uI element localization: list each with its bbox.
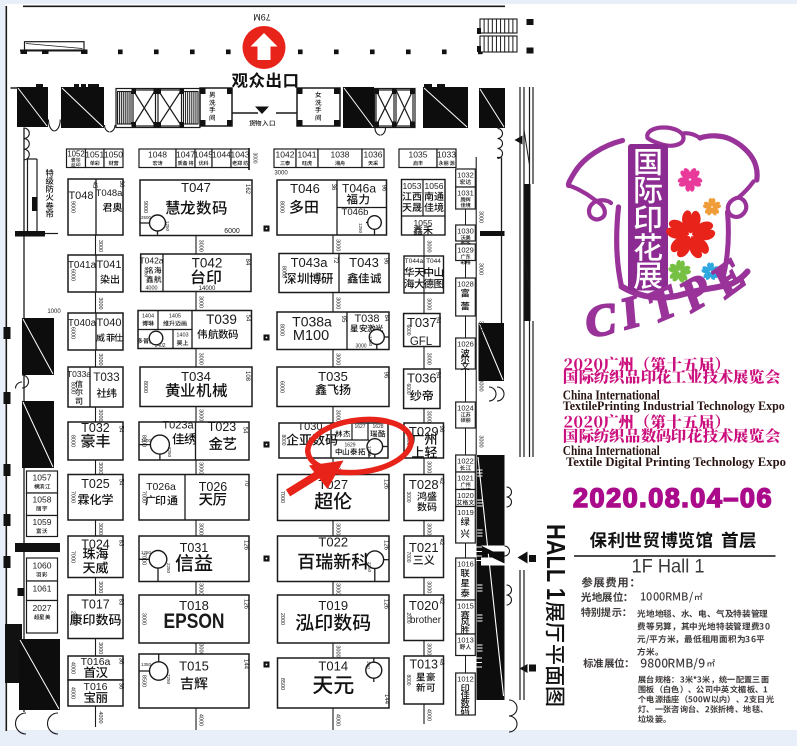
svg-text:96: 96: [383, 258, 389, 265]
svg-text:2000: 2000: [405, 612, 411, 623]
svg-text:72: 72: [332, 257, 338, 264]
svg-text:3000: 3000: [478, 321, 484, 333]
svg-text:3000: 3000: [405, 491, 411, 502]
svg-text:45: 45: [91, 182, 97, 189]
svg-text:1024: 1024: [457, 404, 474, 413]
svg-text:3000: 3000: [335, 353, 341, 365]
svg-text:250: 250: [366, 661, 371, 669]
svg-text:8000: 8000: [279, 324, 285, 336]
svg-text:94: 94: [435, 372, 441, 379]
svg-text:3000: 3000: [97, 409, 103, 421]
svg-text:3000: 3000: [355, 344, 366, 350]
svg-text:4000: 4000: [70, 662, 76, 674]
svg-text:3000: 3000: [478, 211, 484, 223]
svg-text:8000: 8000: [142, 381, 148, 393]
svg-text:3000: 3000: [335, 410, 341, 422]
svg-text:1035: 1035: [409, 150, 428, 160]
svg-text:1403: 1403: [176, 333, 188, 339]
svg-text:14000: 14000: [199, 286, 216, 292]
svg-text:6000: 6000: [279, 381, 285, 393]
svg-text:3000: 3000: [426, 240, 432, 252]
svg-text:3000: 3000: [252, 152, 258, 163]
svg-text:Textile Digital Printing Techn: Textile Digital Printing Technology Expo: [566, 454, 786, 469]
svg-text:1057: 1057: [33, 473, 52, 483]
svg-text:T025: T025: [81, 477, 110, 491]
svg-text:T020: T020: [409, 598, 439, 613]
svg-text:TextilePrinting Industrial Tec: TextilePrinting Industrial Technology Ex…: [563, 398, 785, 413]
svg-text:8000: 8000: [70, 382, 76, 394]
svg-text:1F Hall 1: 1F Hall 1: [632, 557, 705, 578]
svg-text:T038: T038: [354, 313, 379, 325]
svg-text:T023a: T023a: [162, 420, 194, 432]
svg-text:T033: T033: [93, 372, 119, 384]
svg-text:3000: 3000: [141, 613, 147, 625]
svg-text:T046: T046: [290, 181, 320, 196]
svg-text:T016: T016: [84, 681, 108, 693]
svg-text:EPSON: EPSON: [164, 610, 225, 633]
svg-text:1629: 1629: [344, 443, 355, 449]
svg-text:1250: 1250: [358, 223, 363, 234]
svg-text:1042: 1042: [276, 150, 295, 160]
svg-text:T017: T017: [81, 598, 110, 612]
svg-text:162: 162: [244, 184, 250, 195]
svg-text:1041: 1041: [298, 150, 317, 160]
svg-text:1250: 1250: [165, 221, 170, 232]
svg-text:3000: 3000: [198, 353, 204, 365]
svg-text:126: 126: [243, 599, 249, 610]
svg-text:144: 144: [383, 694, 389, 705]
svg-text:8000: 8000: [279, 201, 285, 213]
svg-text:T023: T023: [208, 420, 237, 434]
svg-text:T014: T014: [318, 659, 348, 674]
svg-text:4000: 4000: [97, 711, 103, 723]
svg-text:1028: 1028: [457, 280, 474, 289]
svg-text:T034: T034: [181, 369, 211, 384]
svg-text:3000: 3000: [426, 643, 432, 655]
svg-text:T042a: T042a: [139, 256, 163, 266]
svg-text:8000: 8000: [141, 435, 147, 447]
svg-text:7000: 7000: [405, 551, 411, 562]
svg-text:1026: 1026: [457, 340, 474, 349]
svg-text:7000: 7000: [70, 551, 76, 563]
svg-text:3000: 3000: [426, 298, 432, 310]
svg-text:1012: 1012: [457, 675, 474, 684]
svg-text:1019: 1019: [457, 508, 474, 517]
svg-text:T043: T043: [349, 255, 379, 270]
svg-text:1013: 1013: [457, 636, 474, 645]
svg-text:1250: 1250: [367, 446, 372, 457]
svg-text:36: 36: [118, 658, 124, 665]
svg-text:3000: 3000: [426, 353, 432, 365]
svg-text:3000: 3000: [478, 263, 484, 275]
svg-text:3000: 3000: [478, 379, 484, 391]
svg-text:79M: 79M: [253, 12, 271, 22]
svg-text:T043a: T043a: [291, 255, 329, 270]
svg-text:96: 96: [381, 185, 387, 192]
svg-text:42: 42: [438, 598, 444, 605]
svg-text:1058: 1058: [33, 495, 52, 505]
svg-text:1051: 1051: [85, 150, 104, 160]
svg-text:3000: 3000: [478, 435, 484, 447]
svg-text:T026a: T026a: [146, 481, 176, 493]
svg-text:1033: 1033: [437, 150, 456, 160]
svg-text:1043: 1043: [231, 150, 250, 160]
svg-text:1404: 1404: [142, 314, 154, 320]
svg-text:T040: T040: [96, 317, 121, 329]
svg-text:1029: 1029: [457, 246, 474, 255]
svg-text:1044: 1044: [212, 150, 231, 160]
svg-text:70: 70: [243, 480, 249, 487]
svg-text:T039: T039: [206, 312, 237, 327]
svg-text:8000: 8000: [280, 434, 286, 445]
svg-text:6000: 6000: [224, 228, 240, 235]
svg-text:96: 96: [438, 426, 444, 433]
svg-text:1405: 1405: [169, 314, 181, 320]
svg-text:1053: 1053: [403, 181, 422, 191]
svg-text:7000: 7000: [279, 491, 285, 503]
svg-text:54: 54: [245, 315, 251, 322]
svg-text:6000: 6000: [70, 327, 76, 339]
svg-text:2027: 2027: [33, 603, 52, 613]
svg-text:4000: 4000: [144, 267, 149, 278]
svg-text:3000: 3000: [426, 461, 432, 473]
svg-text:1060: 1060: [33, 561, 52, 571]
svg-text:2020.08.04–06: 2020.08.04–06: [573, 483, 772, 513]
svg-text:T028: T028: [409, 477, 439, 492]
svg-text:3000: 3000: [97, 240, 103, 252]
svg-text:1038: 1038: [331, 150, 350, 160]
svg-text:T031: T031: [180, 541, 209, 555]
svg-text:1000: 1000: [47, 309, 61, 315]
svg-text:36: 36: [118, 181, 124, 188]
svg-text:54: 54: [118, 426, 124, 433]
svg-text:T022: T022: [318, 535, 348, 550]
svg-text:T035: T035: [318, 369, 348, 384]
svg-text:1032: 1032: [457, 171, 474, 180]
svg-text:3000: 3000: [97, 297, 103, 309]
svg-text:6000: 6000: [405, 383, 411, 394]
svg-text:1056: 1056: [425, 181, 444, 191]
svg-text:1031: 1031: [457, 189, 474, 198]
svg-text:3000: 3000: [97, 581, 103, 593]
svg-text:GFL: GFL: [410, 336, 433, 348]
svg-text:T013: T013: [410, 658, 439, 672]
svg-text:1030: 1030: [457, 227, 474, 236]
svg-text:3000: 3000: [97, 523, 103, 535]
svg-text:2000: 2000: [70, 611, 76, 623]
svg-text:3000: 3000: [426, 523, 432, 535]
svg-text:C: C: [582, 293, 620, 347]
svg-text:3000: 3000: [198, 523, 204, 535]
svg-text:T046b: T046b: [342, 207, 369, 218]
svg-text:8000: 8000: [281, 266, 287, 278]
svg-text:T044: T044: [426, 258, 441, 265]
svg-text:1020: 1020: [457, 491, 474, 500]
svg-text:6000: 6000: [70, 269, 76, 281]
svg-text:42: 42: [438, 539, 444, 546]
svg-text:1050: 1050: [104, 150, 123, 160]
svg-text:1627: 1627: [354, 424, 365, 430]
svg-text:1047: 1047: [176, 150, 195, 160]
svg-text:T041: T041: [96, 259, 121, 271]
svg-text:126: 126: [383, 479, 389, 490]
svg-text:HALL 1: HALL 1: [541, 524, 571, 600]
svg-text:7000: 7000: [70, 491, 76, 503]
svg-text:brother: brother: [410, 614, 441, 626]
svg-text:3000: 3000: [198, 583, 204, 595]
svg-text:3000: 3000: [97, 353, 103, 365]
svg-text:1250: 1250: [368, 336, 373, 347]
svg-text:2250: 2250: [166, 563, 171, 574]
svg-text:2500: 2500: [141, 215, 152, 220]
svg-text:T042: T042: [192, 256, 223, 271]
svg-text:3000: 3000: [335, 583, 341, 595]
svg-text:3000: 3000: [198, 296, 204, 308]
svg-text:126: 126: [383, 540, 389, 551]
svg-text:4000: 4000: [145, 286, 157, 292]
svg-text:8500: 8500: [279, 678, 285, 690]
svg-text:3000: 3000: [97, 462, 103, 474]
svg-text:1350: 1350: [141, 662, 152, 667]
svg-text:4000: 4000: [426, 709, 432, 721]
svg-text:2250: 2250: [166, 674, 171, 685]
svg-text:T019: T019: [318, 598, 348, 613]
svg-text:95: 95: [340, 316, 346, 323]
svg-text:3000: 3000: [198, 240, 204, 252]
svg-text:T032: T032: [81, 421, 110, 435]
svg-text:3000: 3000: [335, 239, 341, 251]
svg-text:T044a: T044a: [405, 258, 424, 265]
svg-text:2250: 2250: [367, 562, 372, 573]
svg-text:8000: 8000: [405, 674, 411, 685]
svg-text:4000: 4000: [335, 714, 341, 726]
svg-text:1061: 1061: [33, 584, 52, 594]
svg-text:8000: 8000: [70, 435, 76, 447]
svg-text:T016a: T016a: [81, 656, 111, 668]
svg-text:3000: 3000: [335, 645, 341, 657]
svg-text:126: 126: [243, 540, 249, 551]
svg-text:108: 108: [244, 371, 250, 382]
svg-text:3000: 3000: [274, 171, 288, 177]
svg-text:1015: 1015: [457, 602, 474, 611]
svg-text:T047: T047: [181, 180, 211, 195]
svg-text:1021: 1021: [457, 474, 474, 483]
svg-text:144: 144: [243, 659, 249, 670]
svg-text:2250: 2250: [167, 447, 172, 458]
svg-text:54: 54: [242, 427, 248, 434]
svg-text:7000: 7000: [141, 491, 147, 503]
svg-text:1048: 1048: [148, 150, 167, 160]
svg-text:1016: 1016: [457, 560, 474, 569]
svg-text:126: 126: [383, 599, 389, 610]
svg-text:T021: T021: [409, 540, 439, 555]
svg-text:3000: 3000: [426, 411, 432, 423]
svg-text:3000: 3000: [426, 581, 432, 593]
svg-text:3000: 3000: [198, 409, 204, 421]
svg-text:3000: 3000: [198, 462, 204, 474]
svg-text:42: 42: [438, 478, 444, 485]
svg-text:48: 48: [438, 659, 444, 666]
svg-text:T048a: T048a: [96, 188, 124, 199]
svg-text:3000: 3000: [97, 642, 103, 654]
svg-text:8500: 8500: [141, 675, 147, 687]
svg-text:1059: 1059: [33, 517, 52, 527]
svg-text:3000: 3000: [335, 297, 341, 309]
svg-text:4000: 4000: [198, 714, 204, 726]
svg-text:36: 36: [118, 683, 124, 690]
svg-text:T026: T026: [199, 480, 228, 494]
svg-text:T046a: T046a: [342, 182, 376, 196]
svg-text:83: 83: [118, 599, 124, 606]
svg-text:M100: M100: [293, 328, 329, 344]
svg-text:84: 84: [383, 315, 389, 322]
svg-text:1045: 1045: [194, 150, 213, 160]
svg-text:1052: 1052: [67, 150, 84, 159]
svg-text:96: 96: [383, 372, 389, 379]
svg-text:83: 83: [118, 540, 124, 547]
svg-text:1036: 1036: [364, 150, 383, 160]
svg-text:6000: 6000: [405, 324, 411, 335]
svg-text:36: 36: [330, 184, 336, 191]
svg-text:9000: 9000: [142, 201, 148, 213]
svg-text:7000: 7000: [141, 553, 147, 565]
svg-text:2000: 2000: [279, 613, 285, 625]
svg-text:54: 54: [118, 479, 124, 486]
svg-text:4000: 4000: [70, 687, 76, 699]
svg-text:9000: 9000: [70, 201, 76, 213]
svg-text:1022: 1022: [457, 457, 474, 466]
svg-text:T033a: T033a: [67, 369, 91, 379]
svg-text:84: 84: [244, 259, 250, 266]
svg-text:1628: 1628: [372, 424, 383, 430]
svg-text:94: 94: [435, 317, 441, 324]
svg-text:T015: T015: [179, 659, 209, 674]
